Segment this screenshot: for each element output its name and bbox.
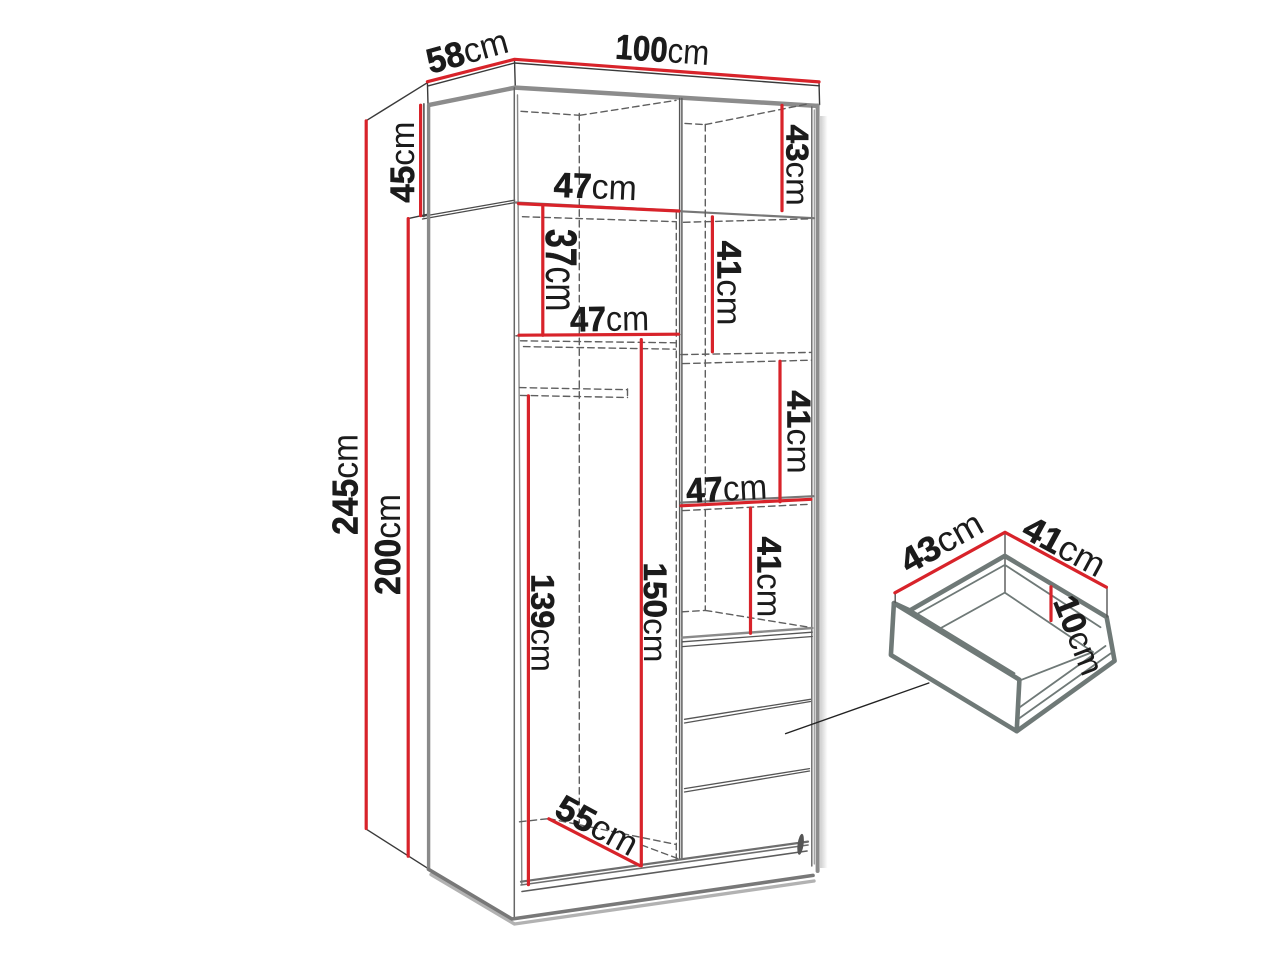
svg-text:41cm: 41cm: [750, 537, 788, 618]
svg-text:37cm: 37cm: [536, 229, 585, 311]
svg-text:43cm: 43cm: [780, 125, 816, 206]
svg-text:245cm: 245cm: [325, 434, 366, 535]
svg-text:45cm: 45cm: [384, 121, 422, 202]
svg-text:41cm: 41cm: [780, 390, 817, 473]
svg-text:150cm: 150cm: [637, 563, 673, 663]
svg-text:47cm: 47cm: [553, 166, 638, 209]
svg-text:41cm: 41cm: [710, 241, 748, 326]
svg-text:47cm: 47cm: [685, 468, 768, 511]
svg-text:139cm: 139cm: [524, 574, 560, 672]
svg-text:100cm: 100cm: [614, 28, 710, 73]
svg-text:200cm: 200cm: [367, 494, 408, 595]
